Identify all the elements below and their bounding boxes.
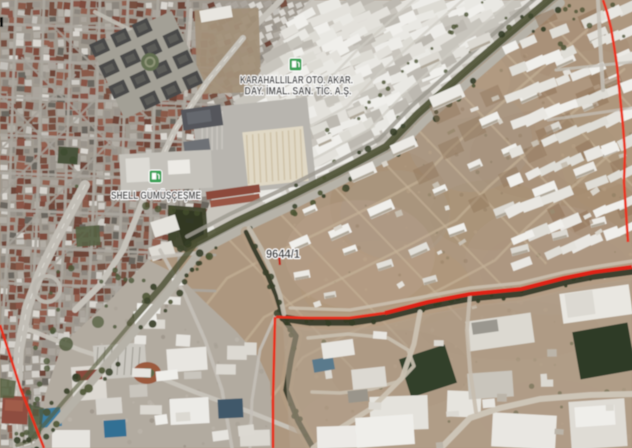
svg-text:SHELL GÜMÜŞÇEŞME: SHELL GÜMÜŞÇEŞME [111,189,201,202]
svg-text:DAY. İMAL. SAN. TİC. A.Ş.: DAY. İMAL. SAN. TİC. A.Ş. [245,85,352,98]
svg-text:9644/1: 9644/1 [266,249,301,261]
